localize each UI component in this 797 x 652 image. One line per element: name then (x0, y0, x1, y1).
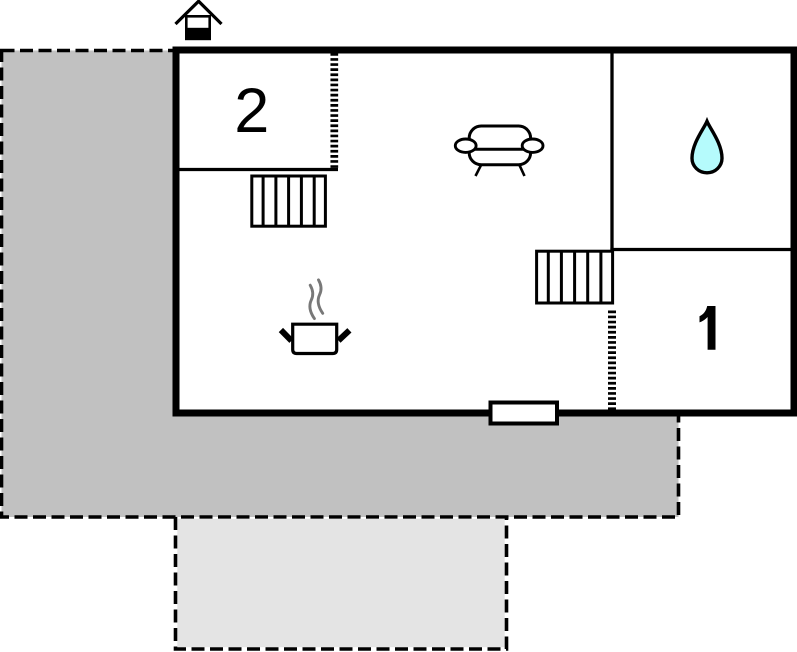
svg-text:2: 2 (234, 76, 269, 146)
